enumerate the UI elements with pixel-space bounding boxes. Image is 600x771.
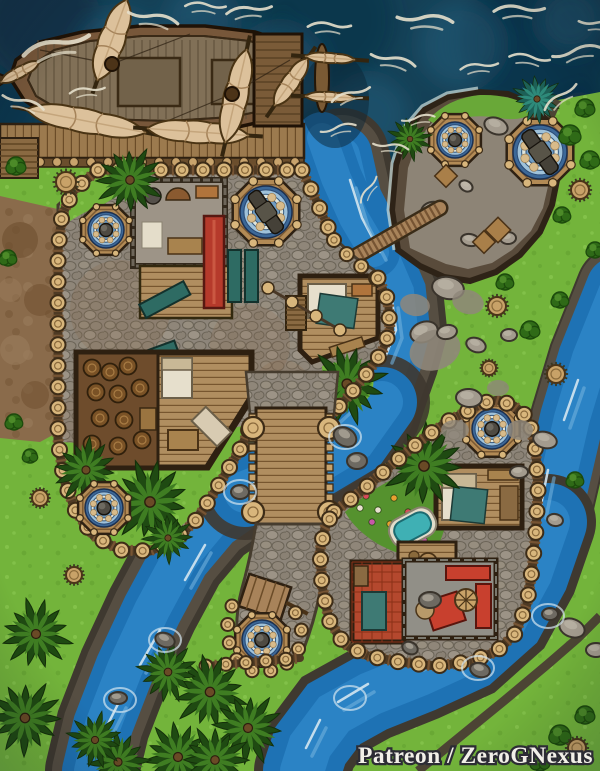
svg-text:Patreon / ZeroGNexus: Patreon / ZeroGNexus <box>358 743 593 769</box>
